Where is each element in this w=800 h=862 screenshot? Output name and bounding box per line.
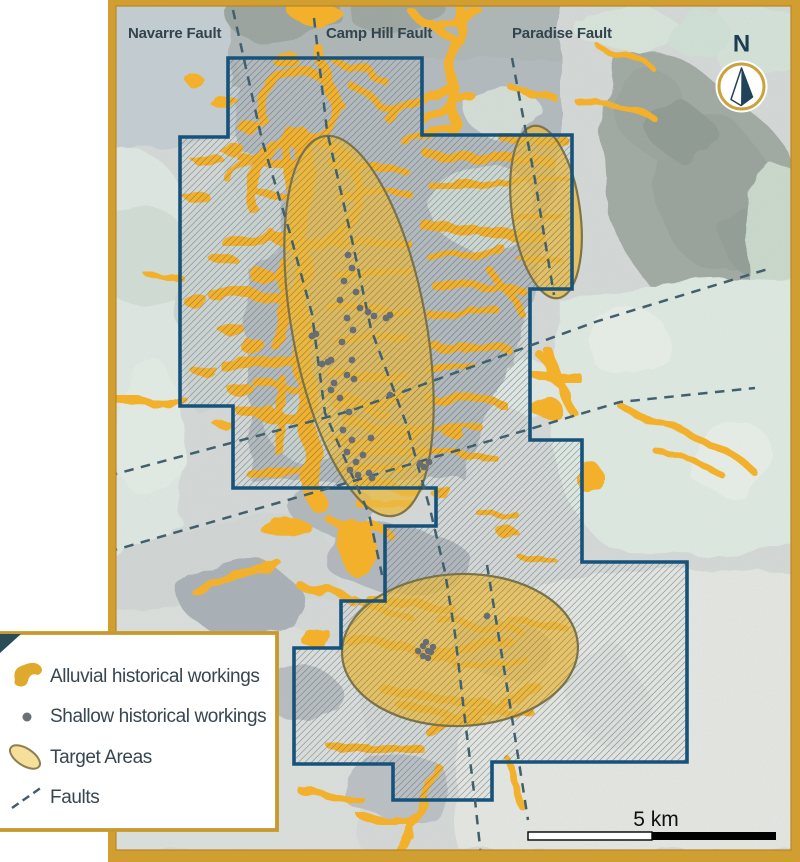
svg-text:Navarre Fault: Navarre Fault — [128, 25, 221, 42]
svg-text:Camp Hill Fault: Camp Hill Fault — [326, 25, 432, 42]
svg-text:Paradise Fault: Paradise Fault — [512, 25, 612, 42]
svg-text:Target Areas: Target Areas — [50, 747, 152, 768]
svg-text:N: N — [733, 31, 750, 58]
svg-text:Shallow historical workings: Shallow historical workings — [50, 706, 266, 727]
svg-text:Faults: Faults — [50, 787, 99, 808]
svg-text:5 km: 5 km — [633, 808, 679, 831]
svg-text:Alluvial historical workings: Alluvial historical workings — [50, 666, 260, 687]
